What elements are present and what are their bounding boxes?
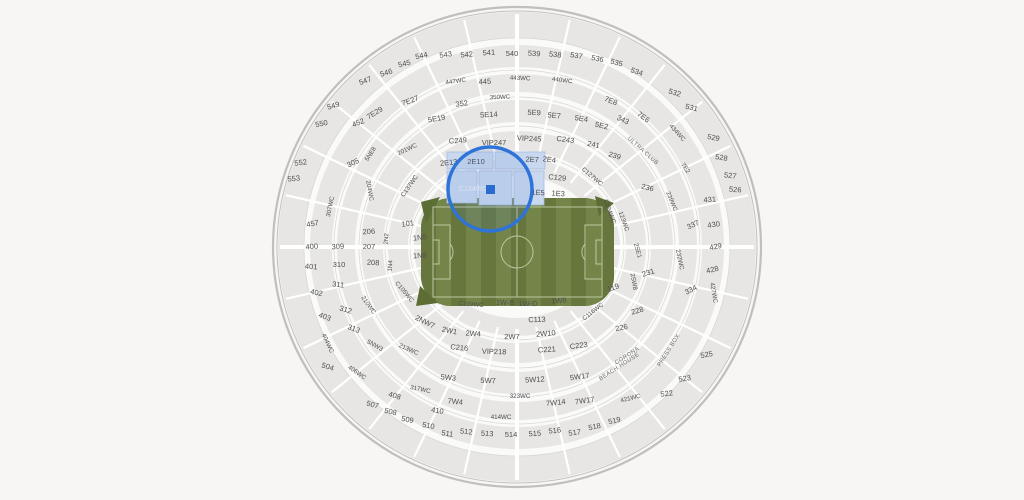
section-label-2w7[interactable]: 2W7 <box>504 332 519 341</box>
section-label-323wc[interactable]: 323WC <box>510 393 531 400</box>
section-label-5e7[interactable]: 5E7 <box>547 110 561 120</box>
section-label-430[interactable]: 430 <box>707 219 721 230</box>
section-label-c113[interactable]: C113 <box>528 315 546 325</box>
section-label-511[interactable]: 511 <box>441 428 454 439</box>
section-label-311[interactable]: 311 <box>332 279 345 289</box>
section-label-540[interactable]: 540 <box>506 49 519 58</box>
section-label-c129[interactable]: C129 <box>548 172 567 183</box>
section-label-512[interactable]: 512 <box>460 426 473 436</box>
section-label-1n4[interactable]: 1N4 <box>387 259 395 271</box>
section-label-208[interactable]: 208 <box>367 258 380 268</box>
section-label-5e9[interactable]: 5E9 <box>527 108 541 117</box>
section-label-1e3[interactable]: 1E3 <box>551 189 565 199</box>
section-label-522[interactable]: 522 <box>660 388 674 399</box>
selected-seat-marker[interactable] <box>486 185 495 194</box>
section-label-101[interactable]: 101 <box>401 218 415 229</box>
section-label-515[interactable]: 515 <box>528 429 541 439</box>
section-label-517[interactable]: 517 <box>568 427 582 438</box>
stadium-seat-map: 5445435425415405395385375365355345455465… <box>0 0 1024 500</box>
section-label-207[interactable]: 207 <box>363 242 376 251</box>
section-label-vip245[interactable]: VIP245 <box>517 133 542 143</box>
section-label-206[interactable]: 206 <box>362 227 375 237</box>
section-label-443wc[interactable]: 443WC <box>510 75 531 83</box>
section-label-5w12[interactable]: 5W12 <box>525 374 545 384</box>
section-label-350wc[interactable]: 350WC <box>490 94 511 102</box>
section-label-c216[interactable]: C216 <box>450 342 469 353</box>
section-label-1w8[interactable]: 1W8 <box>551 295 567 305</box>
section-label-1n8[interactable]: 1N8 <box>413 251 427 261</box>
section-label-552[interactable]: 552 <box>294 157 308 168</box>
section-label-2w4[interactable]: 2W4 <box>465 328 481 338</box>
section-label-541[interactable]: 541 <box>482 48 495 58</box>
section-label-400[interactable]: 400 <box>305 241 318 251</box>
section-label-401[interactable]: 401 <box>305 261 318 271</box>
section-label-1n5[interactable]: 1N5 <box>413 232 427 242</box>
section-label-309[interactable]: 309 <box>331 242 344 252</box>
section-label-2w10[interactable]: 2W10 <box>536 328 556 339</box>
section-label-vip218[interactable]: VIP218 <box>482 347 507 357</box>
section-label-539[interactable]: 539 <box>528 49 541 59</box>
section-label-5w3[interactable]: 5W3 <box>440 372 456 383</box>
section-label-5e14[interactable]: 5E14 <box>480 110 498 120</box>
section-label-1w-b[interactable]: 1W-B <box>496 298 515 308</box>
section-label-513[interactable]: 513 <box>481 429 494 439</box>
section-label-2n2[interactable]: 2N2 <box>383 232 391 244</box>
section-label-2e7[interactable]: 2E7 <box>525 155 539 165</box>
section-label-414wc[interactable]: 414WC <box>491 414 512 421</box>
section-label-310[interactable]: 310 <box>333 260 346 269</box>
section-label-431[interactable]: 431 <box>703 194 716 204</box>
seat-map-canvas[interactable]: 5445435425415405395385375365355345455465… <box>0 0 1024 500</box>
section-label-527[interactable]: 527 <box>724 170 738 180</box>
section-label-553[interactable]: 553 <box>287 173 300 183</box>
section-label-445[interactable]: 445 <box>478 77 491 87</box>
section-label-526[interactable]: 526 <box>729 184 742 194</box>
section-label-352[interactable]: 352 <box>455 98 469 109</box>
section-label-1w-d[interactable]: 1W-D <box>518 299 538 308</box>
section-label-542[interactable]: 542 <box>460 49 473 59</box>
section-label-c221[interactable]: C221 <box>538 344 557 354</box>
section-label-538[interactable]: 538 <box>549 49 562 59</box>
section-label-2e4[interactable]: 2E4 <box>542 154 556 165</box>
section-label-514[interactable]: 514 <box>505 430 518 439</box>
section-label-7w4[interactable]: 7W4 <box>447 396 463 407</box>
section-label-5w7[interactable]: 5W7 <box>480 376 496 386</box>
section-label-516[interactable]: 516 <box>548 425 561 435</box>
section-label-c249[interactable]: C249 <box>449 135 468 145</box>
